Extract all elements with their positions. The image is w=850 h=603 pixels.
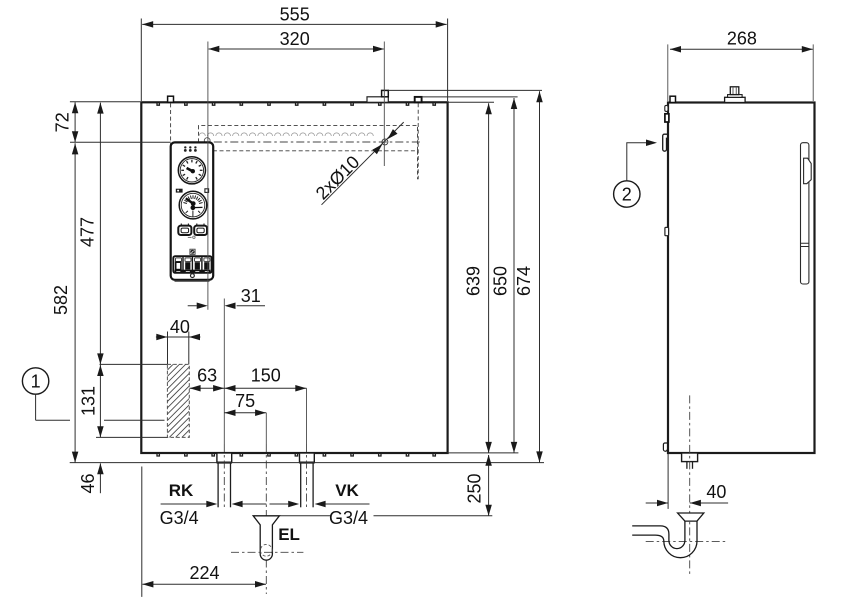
svg-text:224: 224 [189, 563, 219, 583]
svg-text:RK: RK [169, 481, 194, 500]
svg-text:582: 582 [51, 285, 71, 315]
svg-text:EL: EL [278, 525, 300, 544]
svg-text:46: 46 [78, 473, 98, 493]
svg-text:131: 131 [78, 386, 98, 416]
svg-text:250: 250 [465, 473, 485, 503]
svg-text:75: 75 [235, 391, 255, 411]
svg-text:150: 150 [251, 366, 281, 386]
svg-text:639: 639 [464, 266, 484, 296]
svg-text:1: 1 [31, 371, 41, 391]
svg-text:650: 650 [490, 266, 510, 296]
svg-text:72: 72 [53, 112, 73, 132]
svg-text:268: 268 [727, 29, 757, 49]
svg-text:G3/4: G3/4 [160, 508, 199, 528]
svg-text:320: 320 [280, 29, 310, 49]
svg-text:G3/4: G3/4 [329, 508, 368, 528]
svg-text:555: 555 [280, 5, 310, 25]
svg-text:31: 31 [241, 286, 261, 306]
svg-text:40: 40 [706, 482, 726, 502]
svg-text:63: 63 [197, 366, 217, 386]
svg-text:477: 477 [78, 217, 98, 247]
svg-text:VK: VK [335, 481, 359, 500]
svg-text:674: 674 [514, 266, 534, 296]
svg-text:2: 2 [622, 184, 632, 204]
svg-text:40: 40 [170, 317, 190, 337]
